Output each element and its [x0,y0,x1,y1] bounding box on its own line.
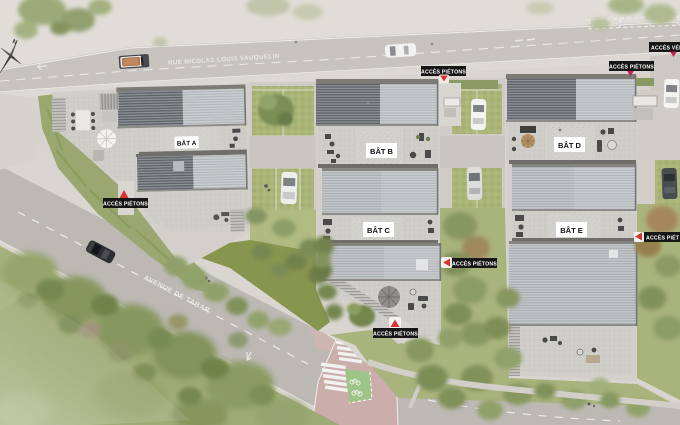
svg-text:BÂT A: BÂT A [177,138,197,147]
svg-text:ACCÈS PIÉTONS: ACCÈS PIÉTONS [103,199,148,207]
svg-text:BÂT C: BÂT C [367,226,390,235]
svg-text:ACCÈS PIÉTONS: ACCÈS PIÉTONS [373,329,418,337]
svg-text:ACCÈS VÉH: ACCÈS VÉH [651,43,680,51]
svg-text:ACCÈS PIÉTONS: ACCÈS PIÉTONS [452,259,497,267]
svg-text:BÂT E: BÂT E [560,226,583,235]
svg-text:BÂT B: BÂT B [370,147,393,156]
svg-text:ACCÈS PIÉTONS: ACCÈS PIÉTONS [421,67,466,75]
svg-text:ACCÈS PIÉTONS: ACCÈS PIÉTONS [609,62,654,70]
svg-text:BÂT D: BÂT D [558,141,581,150]
svg-text:ACCÈS PIÉT: ACCÈS PIÉT [646,233,680,241]
